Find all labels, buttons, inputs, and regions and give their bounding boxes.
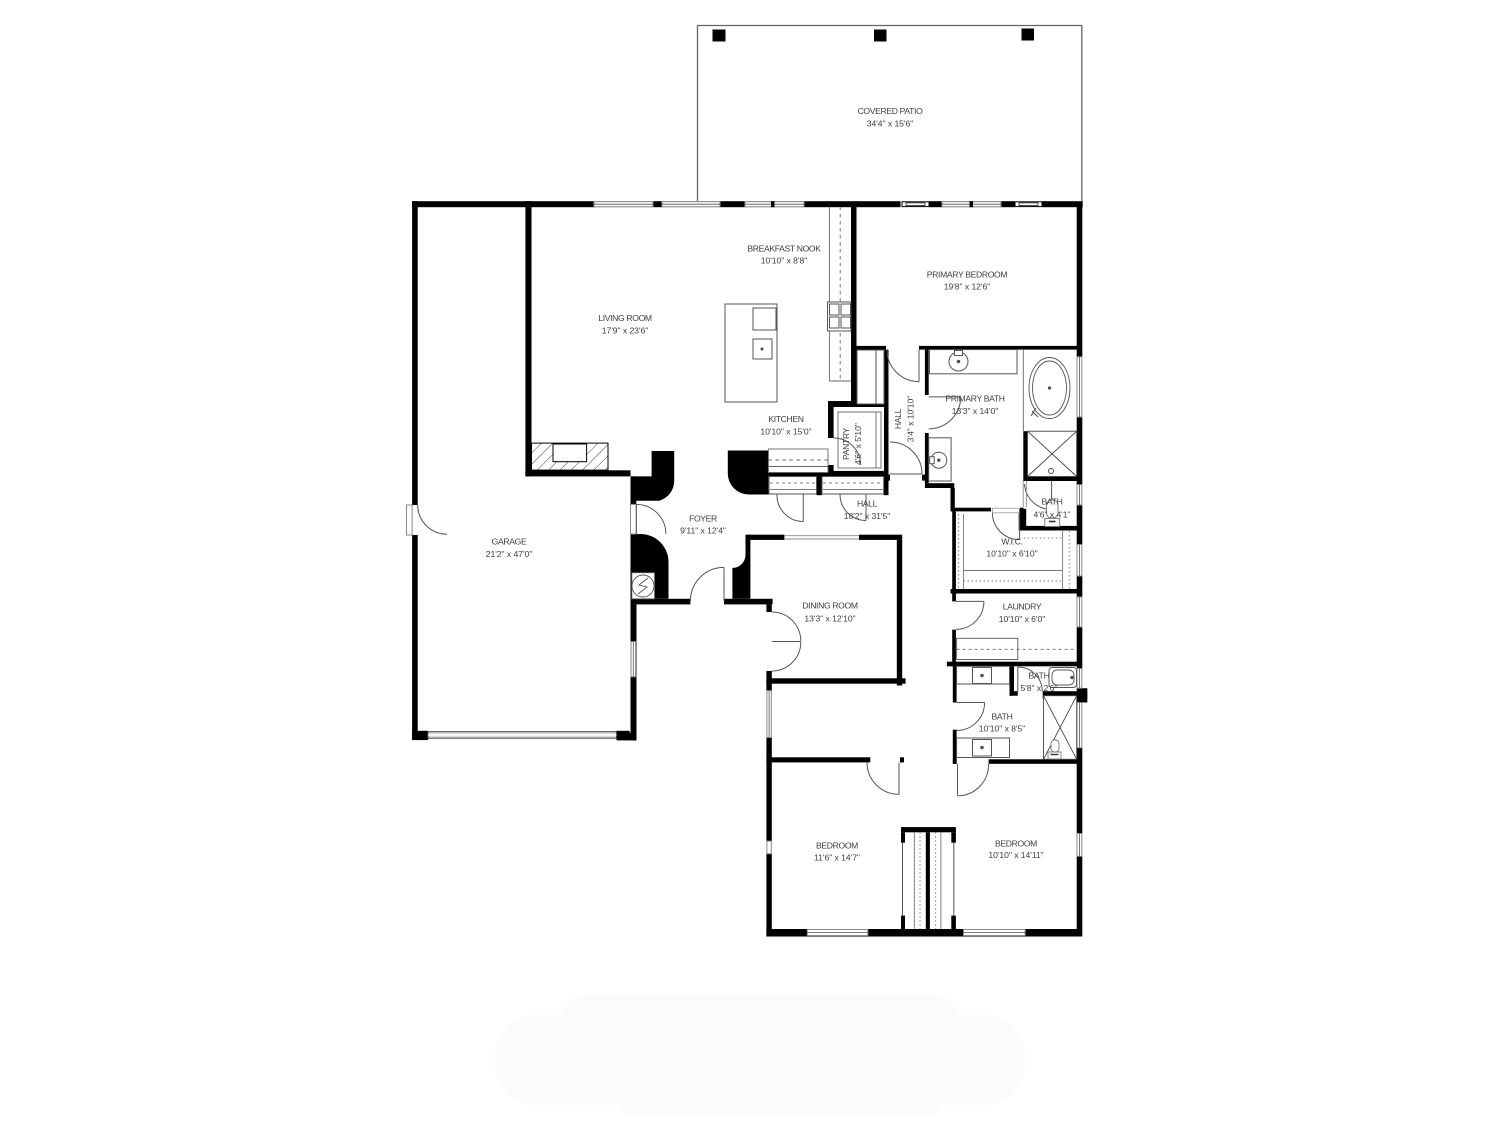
svg-text:LAUNDRY: LAUNDRY xyxy=(1003,602,1042,612)
svg-text:BEDROOM: BEDROOM xyxy=(816,841,858,851)
svg-text:10'10" x 14'11": 10'10" x 14'11" xyxy=(988,850,1043,860)
svg-text:FOYER: FOYER xyxy=(689,514,717,524)
svg-text:3'4" x 10'10": 3'4" x 10'10" xyxy=(906,396,916,442)
svg-text:21'2" x 47'0": 21'2" x 47'0" xyxy=(486,549,532,559)
svg-text:BATH: BATH xyxy=(1042,497,1063,507)
svg-text:W.I.C.: W.I.C. xyxy=(1001,537,1022,547)
svg-text:34'4" x 15'6": 34'4" x 15'6" xyxy=(867,119,913,129)
svg-text:PRIMARY BEDROOM: PRIMARY BEDROOM xyxy=(927,270,1008,280)
svg-text:4'6" x 4'1": 4'6" x 4'1" xyxy=(1033,510,1070,520)
svg-text:BREAKFAST NOOK: BREAKFAST NOOK xyxy=(747,244,821,254)
svg-text:17'9" x 23'6": 17'9" x 23'6" xyxy=(602,326,648,336)
svg-text:BATH: BATH xyxy=(992,712,1013,722)
svg-text:BATH: BATH xyxy=(1029,671,1050,681)
svg-text:11'6" x 14'7": 11'6" x 14'7" xyxy=(814,853,860,863)
svg-text:DINING ROOM: DINING ROOM xyxy=(802,601,858,611)
svg-text:BEDROOM: BEDROOM xyxy=(995,839,1037,849)
svg-text:LIVING ROOM: LIVING ROOM xyxy=(598,313,652,323)
svg-text:COVERED PATIO: COVERED PATIO xyxy=(858,106,924,116)
svg-text:HALL: HALL xyxy=(857,499,878,509)
svg-text:18'2" x 31'5": 18'2" x 31'5" xyxy=(844,511,890,521)
svg-text:19'8" x 12'6": 19'8" x 12'6" xyxy=(944,282,990,292)
svg-text:PRIMARY BATH: PRIMARY BATH xyxy=(945,394,1004,404)
svg-text:KITCHEN: KITCHEN xyxy=(768,414,803,424)
svg-text:9'11" x 12'4": 9'11" x 12'4" xyxy=(680,526,726,536)
svg-text:10'10" x 6'0": 10'10" x 6'0" xyxy=(999,614,1045,624)
svg-text:13'3" x 14'0": 13'3" x 14'0" xyxy=(952,406,998,416)
svg-text:13'3" x 12'10": 13'3" x 12'10" xyxy=(804,614,855,624)
svg-text:PANTRY: PANTRY xyxy=(841,427,851,460)
svg-text:10'10" x 6'10": 10'10" x 6'10" xyxy=(986,549,1037,559)
svg-text:GARAGE: GARAGE xyxy=(492,537,527,547)
svg-text:5'8" x 2'6": 5'8" x 2'6" xyxy=(1020,683,1057,693)
svg-text:4'6" x 5'10": 4'6" x 5'10" xyxy=(853,423,863,465)
svg-text:HALL: HALL xyxy=(893,408,903,429)
svg-text:10'10" x 8'5": 10'10" x 8'5" xyxy=(979,724,1025,734)
svg-text:10'10" x 8'8": 10'10" x 8'8" xyxy=(761,256,807,266)
svg-text:10'10" x 15'0": 10'10" x 15'0" xyxy=(760,427,811,437)
